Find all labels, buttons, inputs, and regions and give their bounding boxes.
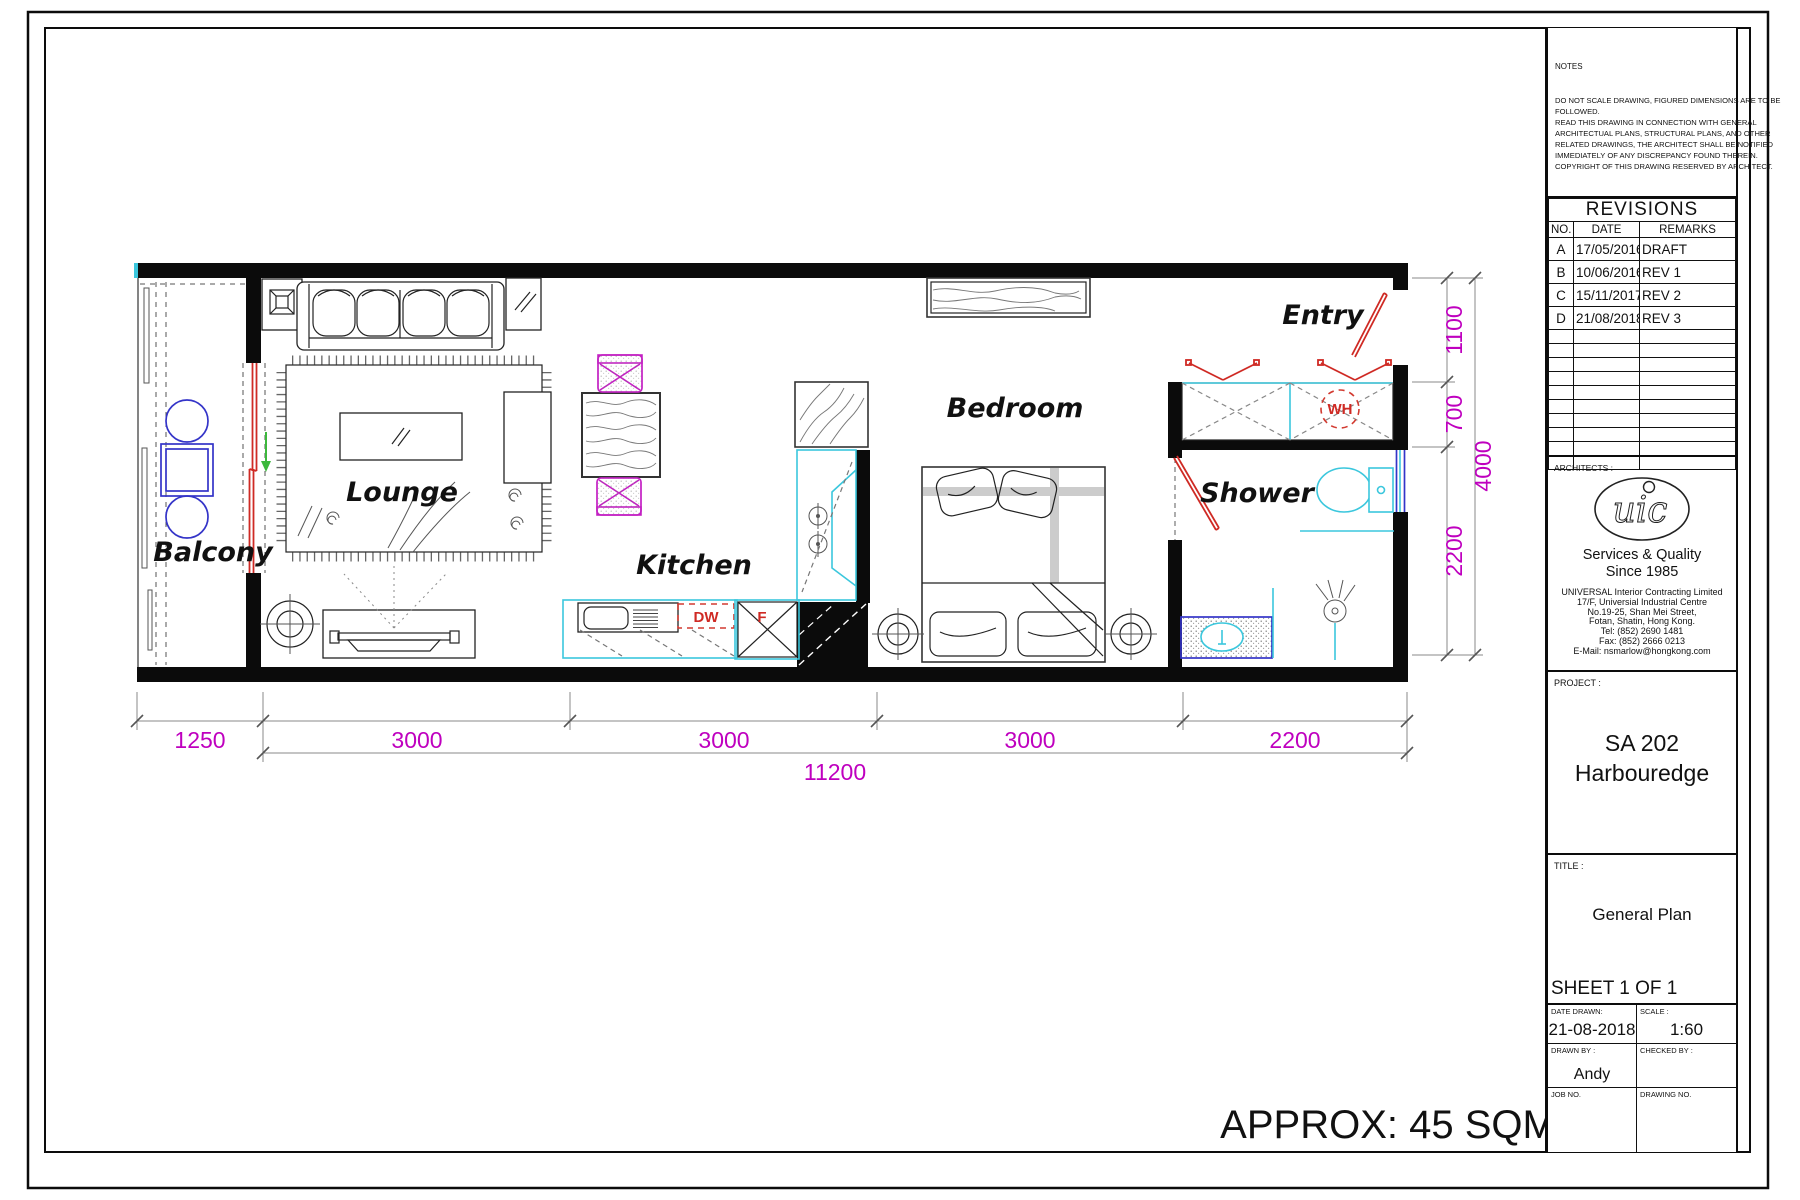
room-label-entry: Entry — [1282, 300, 1365, 331]
cooktop-counter — [797, 450, 856, 600]
notes-heading: NOTES — [1555, 62, 1729, 71]
closet-folding-doors — [1186, 360, 1391, 380]
revisions-section: REVISIONS NO. DATE REMARKS A 17/05/2016 … — [1548, 198, 1736, 455]
revision-row-empty — [1549, 386, 1736, 400]
entry-closet: WH — [1182, 383, 1393, 440]
revisions-col-date: DATE — [1574, 222, 1640, 238]
notes-line: DO NOT SCALE DRAWING, FIGURED DIMENSIONS… — [1555, 95, 1729, 106]
room-label-shower: Shower — [1200, 478, 1315, 509]
dim-closet-depth: 700 — [1441, 395, 1467, 433]
room-label-bedroom: Bedroom — [947, 393, 1084, 424]
drawing-title: General Plan — [1548, 905, 1736, 925]
dining-chair-bottom — [597, 478, 641, 515]
dim-total-width: 11200 — [804, 759, 866, 785]
revisions-col-no: NO. — [1549, 222, 1574, 238]
door-swing-arrow — [261, 432, 271, 472]
field-checked-by: CHECKED BY : — [1637, 1044, 1736, 1088]
revision-row: D 21/08/2018 REV 3 — [1549, 307, 1736, 330]
field-drawing-no: DRAWING NO. — [1637, 1088, 1736, 1152]
dim-bedroom-width: 3000 — [1004, 727, 1055, 753]
notes-line: ARCHITECTUAL PLANS, STRUCTURAL PLANS, AN… — [1555, 128, 1729, 139]
revision-row: C 15/11/2017 REV 2 — [1549, 284, 1736, 307]
floor-plan-drawing: DW F — [0, 0, 1800, 1200]
notes-line: RELATED DRAWINGS, THE ARCHITECT SHALL BE… — [1555, 139, 1729, 150]
dim-lounge-width: 3000 — [391, 727, 442, 753]
architects-section: ARCHITECTS : uic Services & Quality Sinc… — [1548, 455, 1736, 670]
area-note: APPROX: 45 SQM — [1220, 1103, 1556, 1147]
sheet-number: SHEET 1 OF 1 — [1551, 978, 1677, 1000]
revision-row-empty — [1549, 400, 1736, 414]
revision-row-empty — [1549, 344, 1736, 358]
notes-line: READ THIS DRAWING IN CONNECTION WITH GEN… — [1555, 117, 1729, 128]
ceiling-light-bedroom-right — [1105, 608, 1157, 660]
shower-window — [1394, 450, 1407, 512]
drawing-sheet: DW F — [0, 0, 1800, 1200]
ceiling-light-bedroom-left — [872, 608, 924, 660]
architects-tagline1: Services & Quality — [1548, 547, 1736, 563]
title-section: TITLE : General Plan SHEET 1 OF 1 — [1548, 853, 1736, 1003]
revision-row: B 10/06/2016 REV 1 — [1549, 261, 1736, 284]
shower-head — [1316, 580, 1355, 660]
balcony-furniture — [161, 400, 213, 538]
coffee-table — [340, 413, 462, 460]
room-label-kitchen: Kitchen — [636, 550, 752, 581]
revisions-table: REVISIONS NO. DATE REMARKS A 17/05/2016 … — [1548, 198, 1736, 470]
outer-border — [28, 12, 1768, 1188]
uic-logo: uic — [1548, 473, 1736, 543]
project-name-line2: Harbouredge — [1548, 760, 1736, 787]
architects-tagline2: Since 1985 — [1548, 564, 1736, 580]
marble-cabinet — [795, 382, 868, 447]
dining-table — [582, 393, 660, 477]
project-name-line1: SA 202 — [1548, 730, 1736, 757]
notes-section: NOTES DO NOT SCALE DRAWING, FIGURED DIME… — [1548, 28, 1736, 198]
dim-total-depth: 4000 — [1470, 440, 1496, 491]
tv-console — [323, 565, 475, 658]
dim-balcony-width: 1250 — [174, 727, 225, 753]
wardrobe — [927, 278, 1090, 317]
revision-row-empty — [1549, 428, 1736, 442]
revision-row-empty — [1549, 442, 1736, 456]
notes-line: COPYRIGHT OF THIS DRAWING RESERVED BY AR… — [1555, 161, 1729, 172]
dim-entry-width: 2200 — [1269, 727, 1320, 753]
dimension-bottom: 1250 3000 3000 3000 2200 11200 — [131, 692, 1413, 785]
dim-kitchen-width: 3000 — [698, 727, 749, 753]
project-section: PROJECT : SA 202 Harbouredge — [1548, 670, 1736, 853]
fridge-label: F — [757, 609, 766, 626]
notes-line: FOLLOWED. — [1555, 106, 1729, 117]
field-drawn-by: DRAWN BY : Andy — [1548, 1044, 1637, 1088]
dim-entry-depth: 1100 — [1441, 305, 1467, 354]
tv-cabinet — [504, 392, 551, 483]
revision-row-empty — [1549, 358, 1736, 372]
ceiling-light-lounge — [260, 594, 320, 654]
dining-chair-top — [598, 355, 642, 392]
revision-row-empty — [1549, 330, 1736, 344]
bathroom-sink — [1181, 588, 1273, 658]
revision-row: A 17/05/2016 DRAFT — [1549, 238, 1736, 261]
dimension-right: 1100 700 2200 4000 — [1412, 272, 1496, 661]
toilet — [1317, 468, 1393, 512]
bed — [922, 466, 1105, 662]
drawn-by-value: Andy — [1548, 1066, 1636, 1084]
revisions-col-remarks: REMARKS — [1640, 222, 1736, 238]
field-job-no: JOB NO. — [1548, 1088, 1637, 1152]
revisions-title: REVISIONS — [1549, 199, 1736, 222]
scale-value: 1:60 — [1637, 1020, 1736, 1040]
field-scale: SCALE : 1:60 — [1637, 1005, 1736, 1044]
architects-address: UNIVERSAL Interior Contracting Limited 1… — [1548, 588, 1736, 657]
logo-text: uic — [1613, 490, 1668, 531]
kitchen-base-counter: DW — [563, 600, 737, 658]
wall-mirror — [506, 278, 541, 330]
revision-row-empty — [1549, 372, 1736, 386]
water-heater-label: WH — [1328, 401, 1353, 418]
dim-shower-depth: 2200 — [1441, 525, 1467, 576]
lounge-area — [260, 278, 551, 658]
inner-border — [45, 28, 1750, 1152]
title-block: NOTES DO NOT SCALE DRAWING, FIGURED DIME… — [1545, 28, 1738, 1152]
field-date-drawn: DATE DRAWN: 21-08-2018 — [1548, 1005, 1637, 1044]
project-label: PROJECT : — [1554, 678, 1601, 688]
architects-label: ARCHITECTS : — [1554, 463, 1613, 473]
fridge: F — [735, 600, 799, 659]
bedroom-area — [872, 278, 1157, 662]
date-drawn-value: 21-08-2018 — [1548, 1020, 1636, 1040]
fields-section: DATE DRAWN: 21-08-2018 SCALE : 1:60 DRAW… — [1548, 1003, 1736, 1152]
revision-row-empty — [1549, 414, 1736, 428]
title-label: TITLE : — [1554, 861, 1584, 871]
room-label-lounge: Lounge — [346, 477, 458, 508]
room-label-balcony: Balcony — [153, 537, 274, 568]
side-table-lamp — [262, 279, 302, 330]
dishwasher-label: DW — [694, 609, 720, 626]
sofa — [297, 282, 504, 350]
notes-line: IMMEDIATELY OF ANY DISCREPANCY FOUND THE… — [1555, 150, 1729, 161]
balcony-glazing — [140, 282, 246, 665]
